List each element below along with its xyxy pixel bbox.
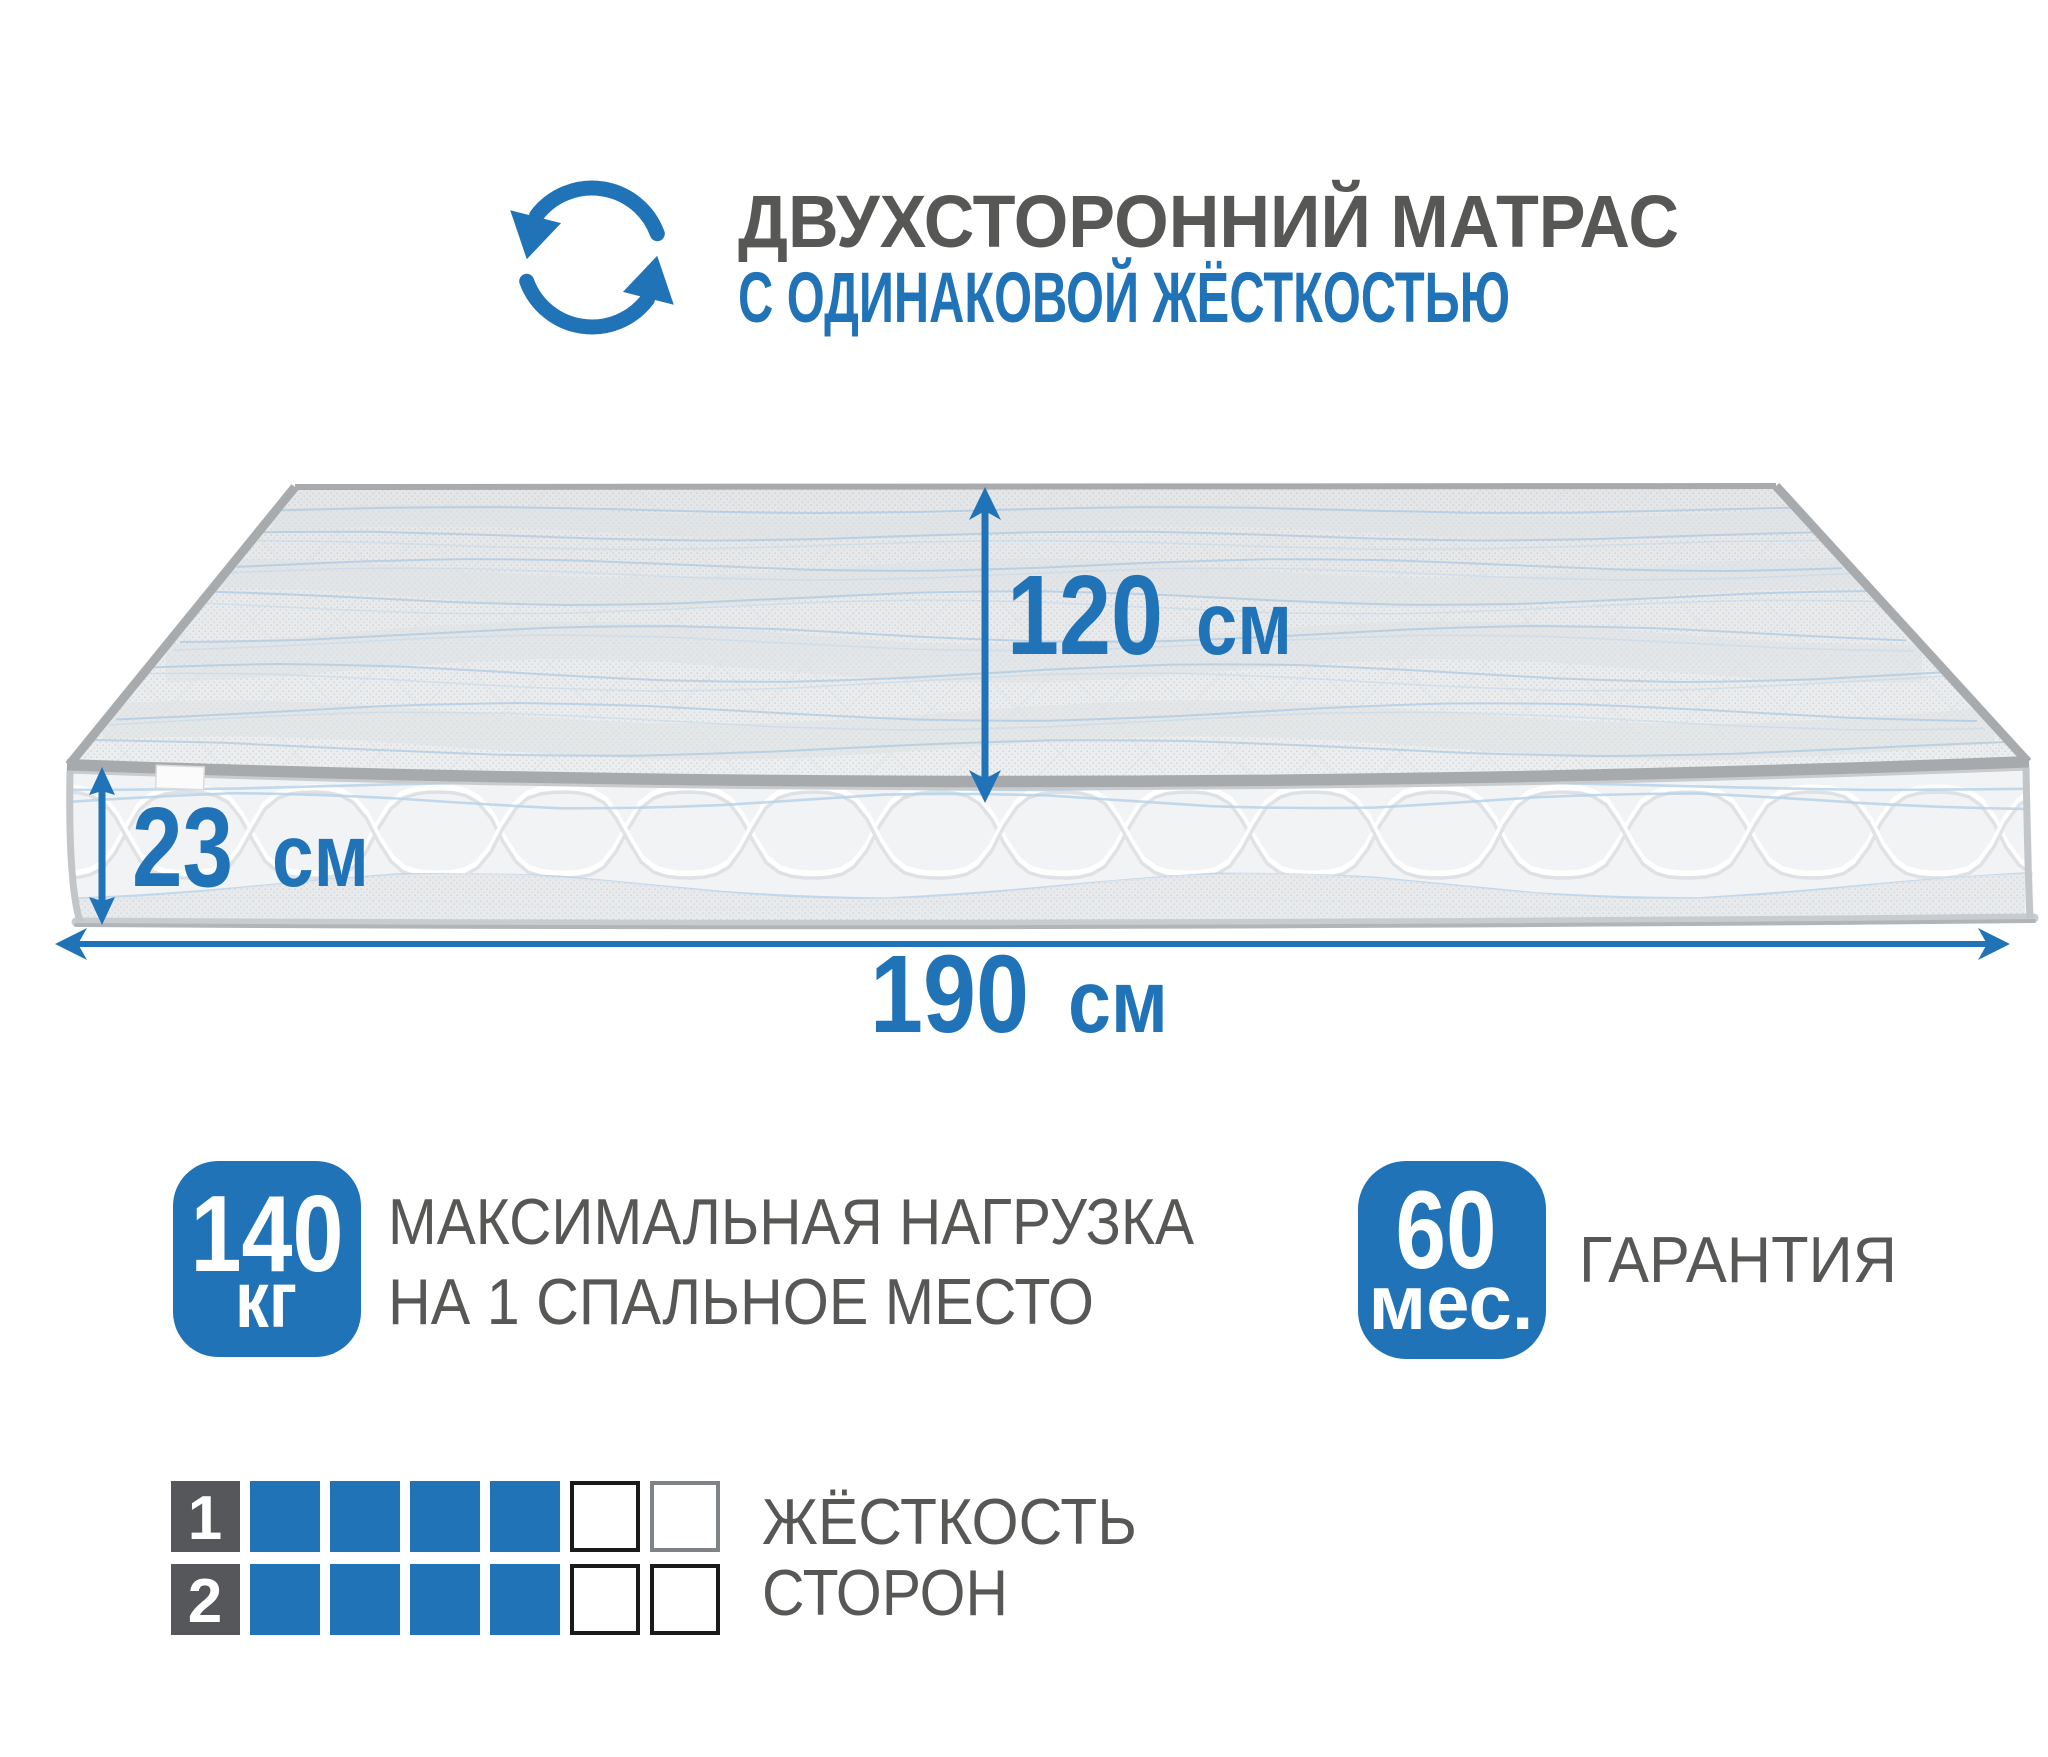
svg-text:С ОДИНАКОВОЙ ЖЁСТКОСТЬЮ: С ОДИНАКОВОЙ ЖЁСТКОСТЬЮ — [738, 258, 1510, 338]
svg-text:см: см — [272, 805, 369, 905]
svg-text:120: 120 — [1007, 552, 1163, 678]
svg-text:190: 190 — [870, 933, 1029, 1056]
svg-text:1: 1 — [188, 1484, 222, 1553]
svg-text:СТОРОН: СТОРОН — [762, 1556, 1008, 1629]
svg-text:см: см — [1196, 573, 1292, 673]
svg-text:НА 1 СПАЛЬНОЕ МЕСТО: НА 1 СПАЛЬНОЕ МЕСТО — [388, 1265, 1094, 1338]
svg-text:мес.: мес. — [1369, 1260, 1534, 1346]
svg-text:ДВУХСТОРОННИЙ МАТРАС: ДВУХСТОРОННИЙ МАТРАС — [738, 179, 1679, 263]
svg-text:23: 23 — [132, 784, 233, 910]
svg-text:ЖЁСТКОСТЬ: ЖЁСТКОСТЬ — [762, 1485, 1137, 1558]
svg-text:2: 2 — [188, 1567, 222, 1636]
svg-text:ГАРАНТИЯ: ГАРАНТИЯ — [1579, 1223, 1897, 1296]
svg-text:кг: кг — [235, 1255, 297, 1344]
svg-text:см: см — [1068, 951, 1168, 1051]
svg-text:МАКСИМАЛЬНАЯ НАГРУЗКА: МАКСИМАЛЬНАЯ НАГРУЗКА — [388, 1185, 1195, 1258]
